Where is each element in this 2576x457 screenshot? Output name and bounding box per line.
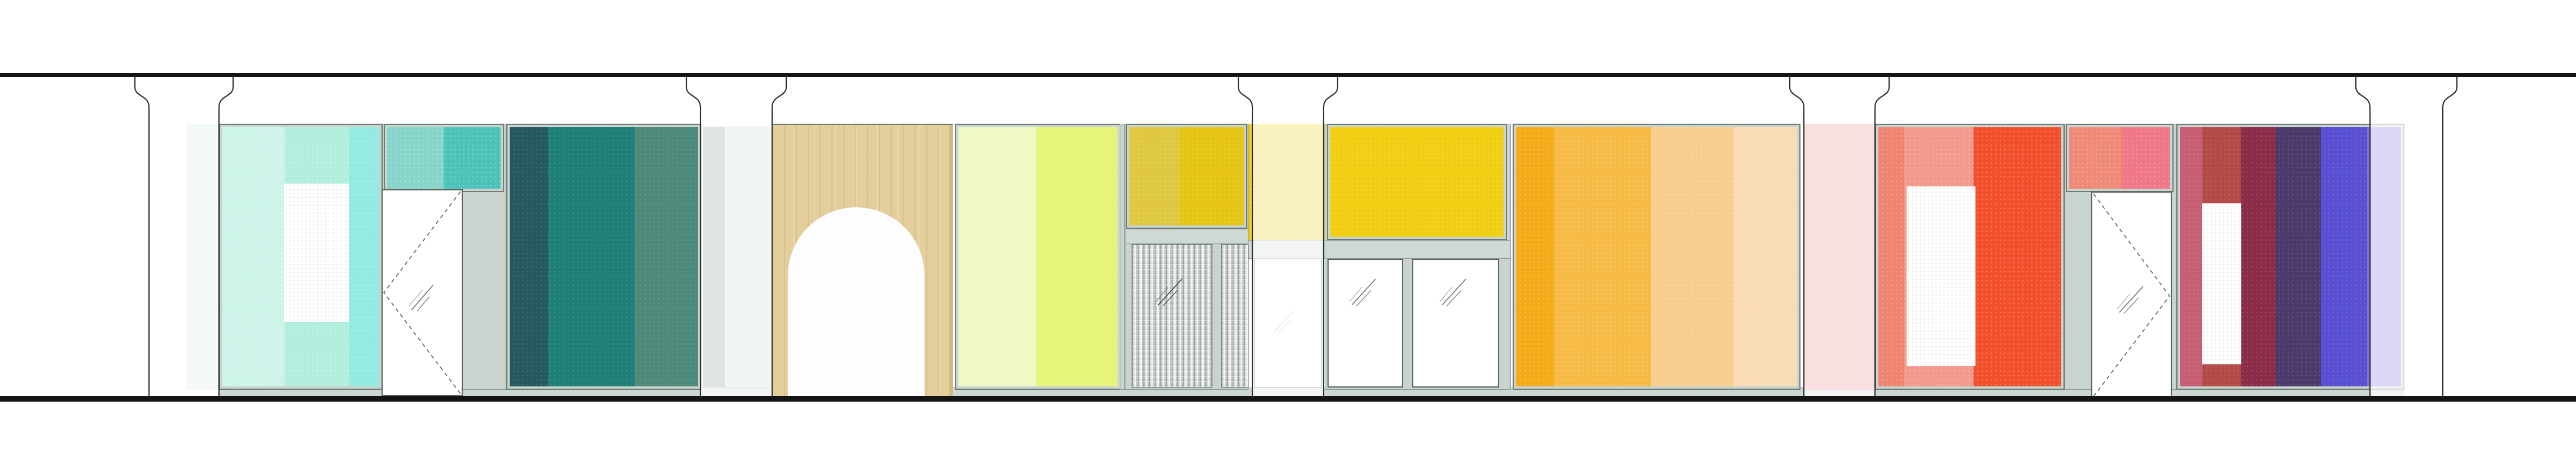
ground-line — [0, 396, 2576, 402]
pilaster-outlines — [0, 0, 2576, 457]
top-wall-line — [0, 73, 2576, 77]
elevation-drawing — [0, 0, 2576, 457]
